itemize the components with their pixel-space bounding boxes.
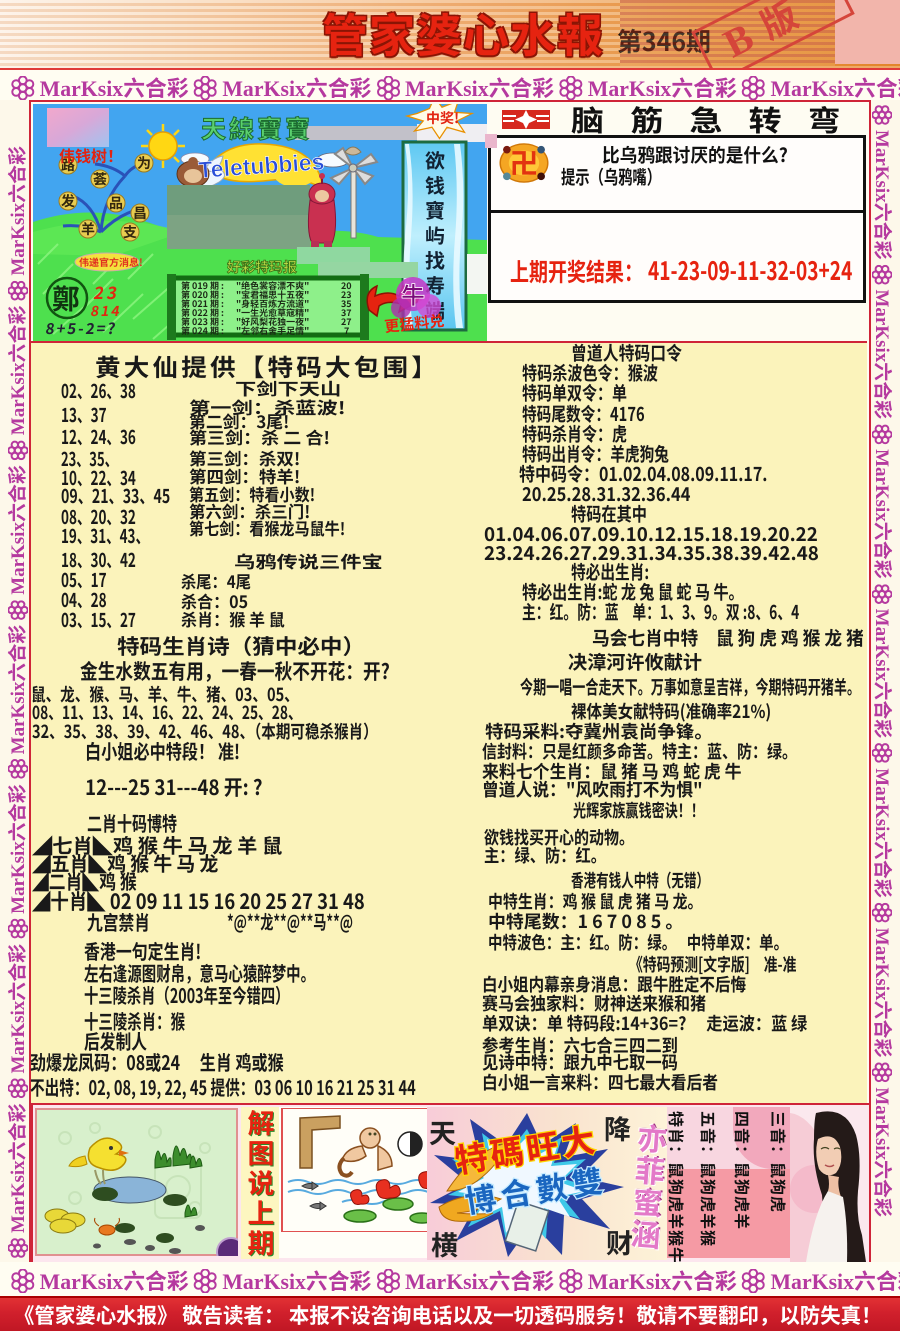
svg-text:羊: 羊	[81, 219, 95, 239]
svg-text:中奖!: 中奖!	[426, 108, 459, 128]
svg-text:伟递官方消息!: 伟递官方消息!	[79, 254, 143, 269]
svg-text:昌: 昌	[133, 203, 147, 223]
svg-text:伟钱树！: 伟钱树！	[59, 143, 123, 167]
svg-text:品: 品	[109, 193, 123, 213]
svg-text:第 024 期 :: 第 024 期 :	[181, 324, 224, 337]
svg-text:天線寶寶: 天線寶寶	[201, 110, 313, 146]
svg-text:鄭: 鄭	[52, 278, 80, 318]
svg-text:发: 发	[61, 191, 75, 211]
svg-text:支: 支	[123, 222, 137, 242]
svg-text:牛: 牛	[401, 276, 425, 311]
svg-text:横: 横	[431, 1224, 458, 1260]
svg-text:"左邻右舍手足情": "左邻右舍手足情"	[236, 324, 309, 337]
svg-text:荟: 荟	[93, 169, 107, 189]
svg-text:好彩特玛报: 好彩特玛报	[227, 257, 297, 277]
svg-text:7: 7	[344, 324, 349, 337]
svg-text:卍: 卍	[510, 143, 539, 182]
svg-text:天: 天	[429, 1112, 456, 1151]
svg-text:8+5-2=?: 8+5-2=?	[44, 318, 118, 339]
svg-text:为: 为	[137, 153, 151, 173]
svg-text:降: 降	[604, 1108, 631, 1147]
